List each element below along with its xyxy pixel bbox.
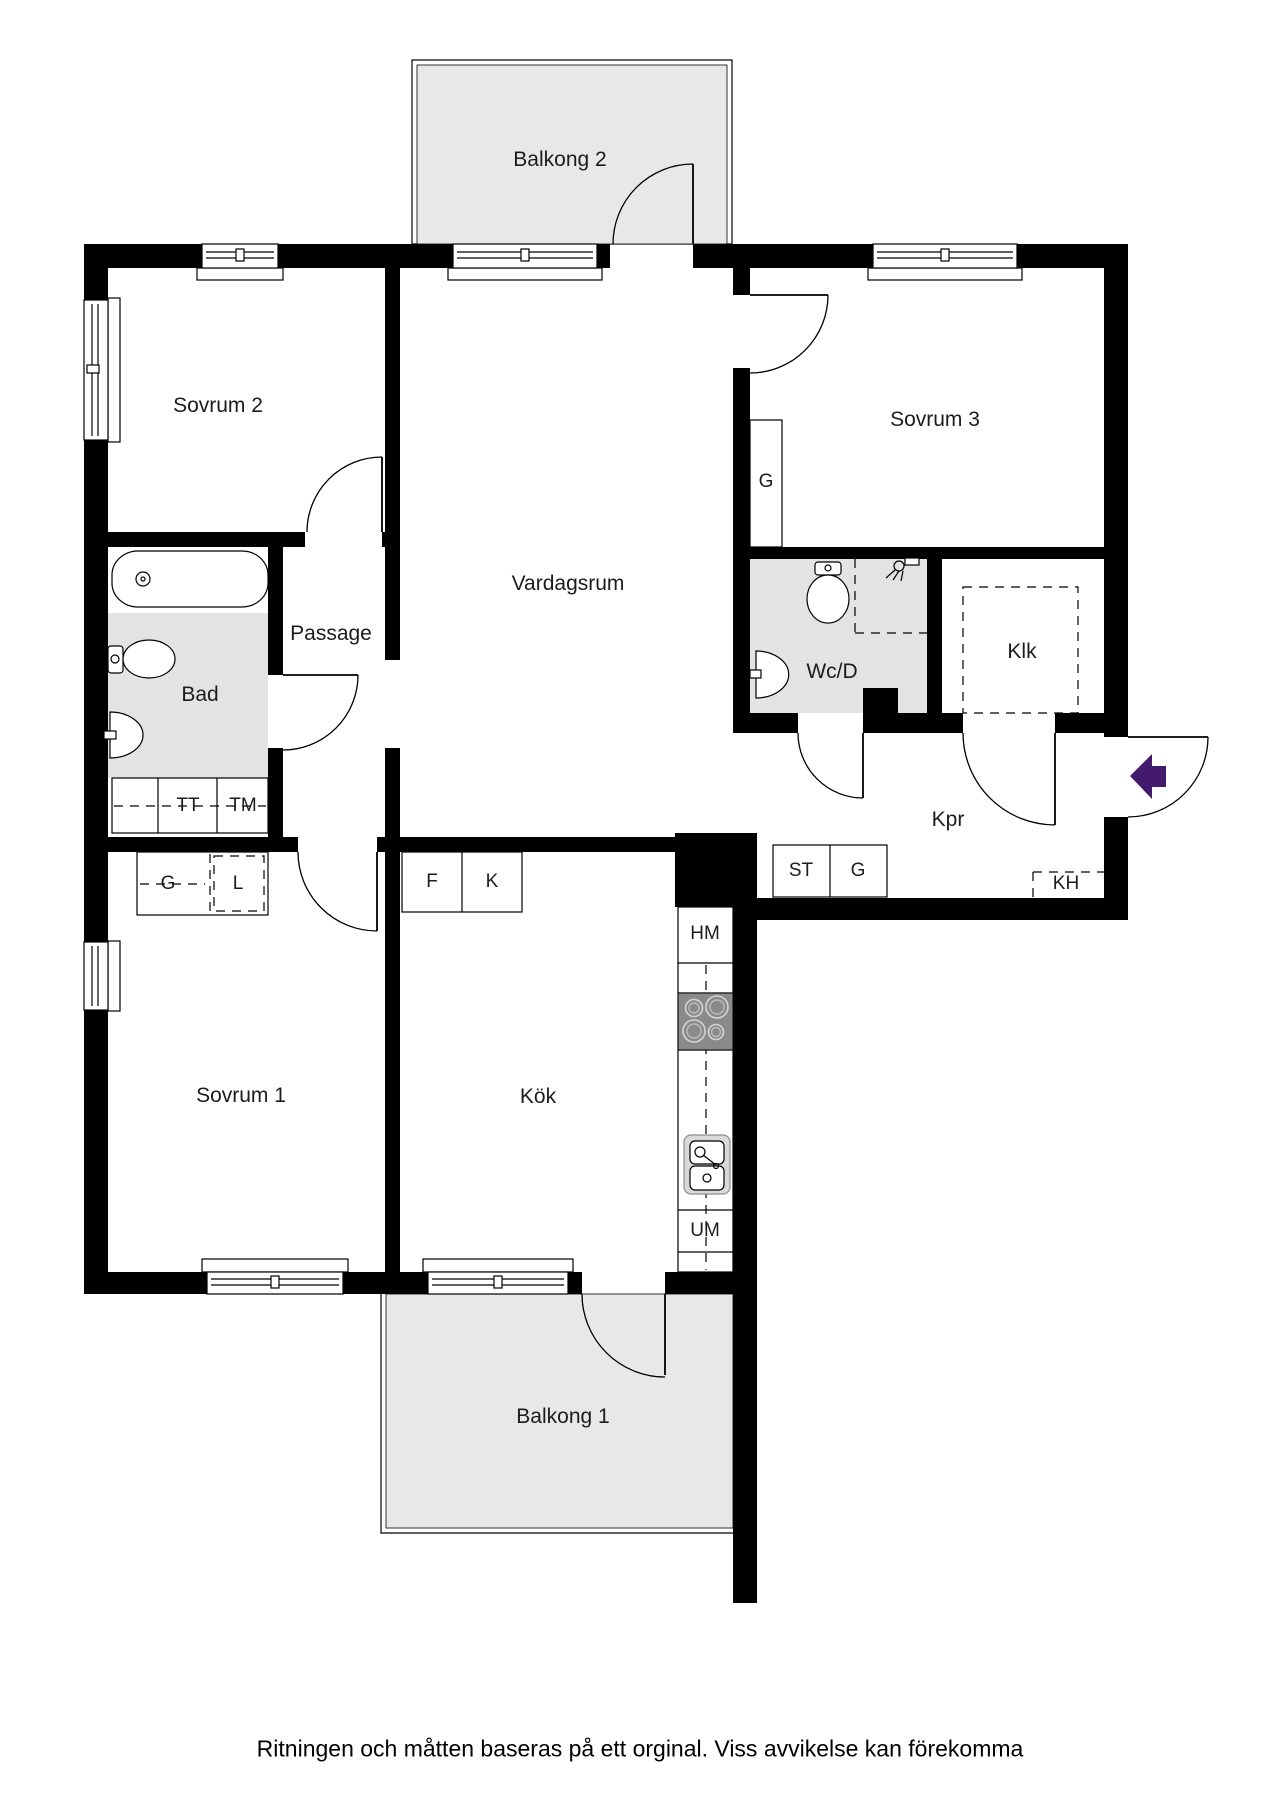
label-tm: TM <box>229 795 256 817</box>
label-hm: HM <box>690 923 720 945</box>
kitchen-counter <box>678 907 733 1272</box>
label-kok: Kök <box>520 1085 556 1109</box>
label-sovrum2: Sovrum 2 <box>173 394 263 418</box>
door-sovrum2 <box>307 457 382 532</box>
label-wcd: Wc/D <box>806 660 857 684</box>
label-vardagsrum: Vardagsrum <box>512 572 625 596</box>
label-closet-g-sovrum1: G <box>161 873 176 895</box>
window-kok-bottom <box>423 1259 573 1294</box>
label-tt: TT <box>176 795 199 817</box>
door-sovrum1 <box>298 852 377 931</box>
window-vardagsrum-top <box>448 244 602 280</box>
window-sovrum3-top <box>868 244 1022 280</box>
label-sovrum3: Sovrum 3 <box>890 408 980 432</box>
door-sovrum3 <box>750 295 828 373</box>
floorplan-page: Balkong 2 Sovrum 2 Sovrum 3 Vardagsrum P… <box>0 0 1280 1810</box>
label-kh: KH <box>1053 873 1079 895</box>
door-wcd <box>798 733 863 798</box>
kitchen-sink-icon <box>684 1135 730 1194</box>
fridge-freezer-cabinets <box>402 852 522 912</box>
stove-icon <box>678 993 733 1050</box>
label-g-kpr: G <box>851 860 866 882</box>
label-closet-g-sovrum3: G <box>759 471 774 493</box>
door-klk <box>963 733 1055 825</box>
door-bad <box>283 675 358 750</box>
label-sovrum1: Sovrum 1 <box>196 1084 286 1108</box>
label-fridge: F <box>426 871 438 893</box>
bathtub-icon <box>112 551 268 607</box>
label-st: ST <box>789 860 813 882</box>
closet-g-l-sovrum1 <box>137 852 268 915</box>
disclaimer-text: Ritningen och måtten baseras på ett orgi… <box>257 1736 1024 1763</box>
floorplan-canvas <box>0 0 1280 1810</box>
entrance-arrow-icon <box>1130 754 1166 799</box>
label-bad: Bad <box>181 683 218 707</box>
label-kpr: Kpr <box>932 808 965 832</box>
window-sovrum2-top <box>197 244 283 280</box>
label-closet-l-sovrum1: L <box>233 873 244 895</box>
label-passage: Passage <box>290 622 372 646</box>
window-sovrum1-left <box>84 941 120 1011</box>
label-balkong2: Balkong 2 <box>513 148 606 172</box>
window-sovrum2-left <box>84 298 120 442</box>
label-freezer: K <box>486 871 499 893</box>
window-sovrum1-bottom <box>202 1259 348 1294</box>
label-balkong1: Balkong 1 <box>516 1405 609 1429</box>
label-um: UM <box>690 1220 720 1242</box>
label-klk: Klk <box>1007 640 1036 664</box>
toilet-bad-icon <box>108 640 175 678</box>
